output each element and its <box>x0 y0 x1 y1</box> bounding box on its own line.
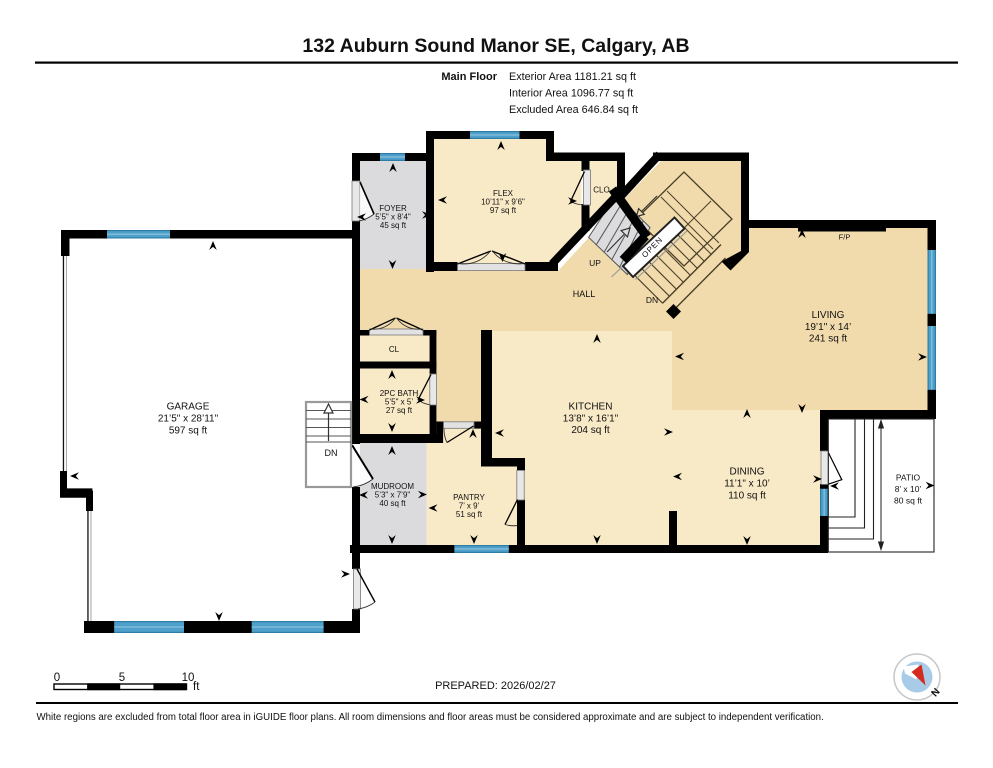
svg-text:CLO: CLO <box>593 186 609 195</box>
svg-text:8’ x 10’: 8’ x 10’ <box>895 484 922 494</box>
svg-text:27 sq ft: 27 sq ft <box>386 406 413 415</box>
svg-text:110 sq ft: 110 sq ft <box>728 491 766 502</box>
svg-text:N: N <box>930 687 943 700</box>
svg-text:UP: UP <box>589 258 601 268</box>
svg-text:F/P: F/P <box>839 233 851 242</box>
svg-text:132 Auburn Sound Manor SE, Cal: 132 Auburn Sound Manor SE, Calgary, AB <box>302 35 689 57</box>
svg-text:204 sq ft: 204 sq ft <box>571 425 610 436</box>
svg-text:19’1" x 14’: 19’1" x 14’ <box>805 322 851 333</box>
svg-text:21’5" x 28’11": 21’5" x 28’11" <box>158 414 219 425</box>
svg-text:ft: ft <box>193 681 200 693</box>
svg-text:KITCHEN: KITCHEN <box>569 402 613 413</box>
svg-text:241 sq ft: 241 sq ft <box>809 334 848 345</box>
svg-text:DN: DN <box>325 448 338 458</box>
svg-text:DINING: DINING <box>730 467 765 478</box>
svg-text:45 sq ft: 45 sq ft <box>380 221 407 230</box>
svg-text:11’1" x 10’: 11’1" x 10’ <box>724 479 770 490</box>
svg-text:597 sq ft: 597 sq ft <box>169 426 208 437</box>
svg-text:97 sq ft: 97 sq ft <box>490 206 517 215</box>
svg-text:5: 5 <box>119 672 125 684</box>
svg-text:HALL: HALL <box>573 289 596 299</box>
svg-text:Excluded Area 646.84 sq ft: Excluded Area 646.84 sq ft <box>509 104 638 116</box>
svg-text:CL: CL <box>389 345 400 354</box>
svg-text:13’8" x 16’1": 13’8" x 16’1" <box>563 414 619 425</box>
svg-text:Interior Area 1096.77 sq ft: Interior Area 1096.77 sq ft <box>509 88 633 100</box>
svg-text:DN: DN <box>646 295 658 305</box>
svg-text:PATIO: PATIO <box>896 473 921 483</box>
svg-text:Exterior Area 1181.21 sq ft: Exterior Area 1181.21 sq ft <box>509 71 636 83</box>
svg-text:80 sq ft: 80 sq ft <box>894 496 923 506</box>
svg-text:0: 0 <box>54 672 60 684</box>
svg-text:51 sq ft: 51 sq ft <box>456 510 483 519</box>
svg-text:Main Floor: Main Floor <box>441 71 497 83</box>
svg-text:40 sq ft: 40 sq ft <box>379 499 406 508</box>
svg-text:White regions are excluded fro: White regions are excluded from total fl… <box>37 712 824 723</box>
svg-text:GARAGE: GARAGE <box>167 402 210 413</box>
svg-text:PREPARED: 2026/02/27: PREPARED: 2026/02/27 <box>435 680 556 692</box>
svg-text:LIVING: LIVING <box>812 310 845 321</box>
